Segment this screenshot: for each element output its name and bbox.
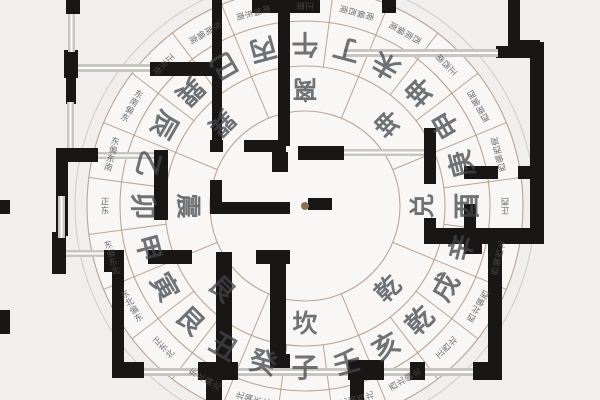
window-glass-line <box>425 371 473 373</box>
wall <box>272 152 288 172</box>
wall <box>52 232 66 274</box>
wall <box>308 198 332 210</box>
wall <box>66 0 80 14</box>
direction-label: 正东 <box>101 197 110 216</box>
window-glass-line <box>61 196 63 238</box>
direction-label-char: 南 <box>295 2 306 11</box>
wall <box>496 46 534 58</box>
bagua-char: 坎 <box>292 309 317 338</box>
mountain-char: 卯 <box>127 193 158 220</box>
window-glass-line <box>384 371 410 373</box>
wall <box>210 202 290 214</box>
bagua-char: 兑 <box>408 193 437 218</box>
wall <box>278 10 290 146</box>
bagua-char: 震 <box>173 193 202 219</box>
direction-label: 正南 <box>295 2 314 11</box>
center-dot <box>301 202 309 210</box>
wall <box>64 50 78 78</box>
window-glass-line <box>78 67 150 69</box>
window-glass-line <box>344 152 424 154</box>
wall <box>270 252 286 362</box>
compass-floorplan-canvas: 坎艮震巽离坤兑乾子癸丑艮寅甲卯乙辰巽巳丙午丁未坤申庚酉辛戌乾亥壬正北北偏东北东北… <box>0 0 600 400</box>
direction-label: 正西 <box>500 196 509 215</box>
mountain-char: 午 <box>292 28 319 60</box>
wall <box>530 42 544 238</box>
wall <box>56 148 98 162</box>
wall <box>298 146 344 160</box>
window-glass-line <box>71 14 73 52</box>
wall <box>508 0 520 42</box>
fengshui-floorplan-overlay: 坎艮震巽离坤兑乾子癸丑艮寅甲卯乙辰巽巳丙午丁未坤申庚酉辛戌乾亥壬正北北偏东北东北… <box>0 0 600 400</box>
wall <box>210 140 223 152</box>
wall <box>0 200 10 214</box>
window-glass-line <box>344 52 498 54</box>
window-glass-line <box>66 253 104 255</box>
wall <box>424 218 436 244</box>
mountain-char: 子 <box>292 353 319 384</box>
wall <box>473 362 489 380</box>
wall <box>66 76 76 104</box>
direction-label-char: 东 <box>101 205 110 216</box>
bagua-char: 离 <box>292 74 317 103</box>
wall <box>0 310 10 334</box>
wall <box>112 362 144 378</box>
mountain-char: 酉 <box>452 193 483 220</box>
window-glass-line <box>70 102 72 148</box>
wall <box>382 0 396 13</box>
wall <box>244 140 286 152</box>
direction-label-char: 西 <box>501 196 510 206</box>
